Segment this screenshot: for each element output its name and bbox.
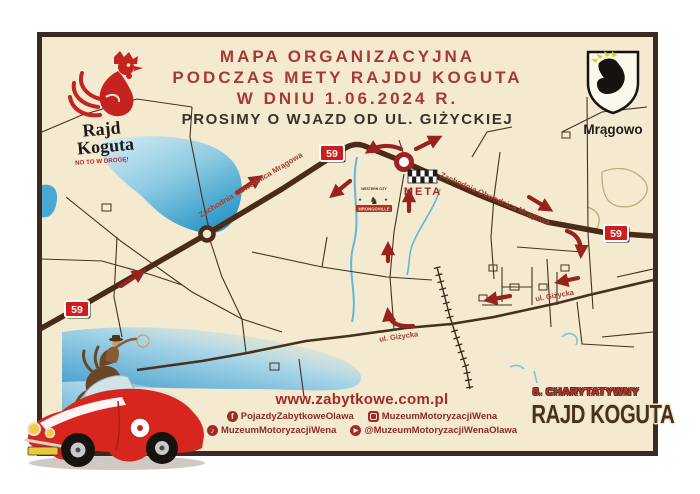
social-row-2: ♪ MuzeumMotoryzacjiWena ▶ @MuzeumMotoryz… (182, 425, 542, 436)
social-row-1: f PojazdyZabytkoweOlawa MuzeumMotoryzacj… (182, 411, 542, 422)
arrow-turn-up-gizycka (388, 312, 413, 326)
poster-page: 59 59 59 Zachodnia Obwodnica Mrągowa Zac… (0, 0, 700, 494)
website-url: www.zabytkowe.com.pl (182, 391, 542, 408)
event-badge: 8. CHARYTATYWNY RAJD KOGUTA (516, 386, 656, 430)
front-wheel-icon (61, 433, 95, 467)
instagram-handle: MuzeumMotoryzacjiWena (382, 411, 497, 422)
arrow-sw-mid (333, 181, 350, 195)
route-badge-right: 59 (604, 225, 630, 243)
checkered-flag-icon (408, 170, 437, 183)
field-outlines (585, 168, 647, 231)
arrow-ne-top (416, 138, 438, 149)
roundabout-meta (397, 155, 412, 170)
star-left-icon: ★ (358, 197, 363, 202)
mrongoville-logo: WESTERN CITY ★ ★ ♞ MRONGOVILLE (356, 187, 392, 212)
facebook-handle: PojazdyZabytkoweOlawa (241, 411, 354, 422)
mrongoville-banner-text: MRONGOVILLE (358, 206, 389, 211)
crest-city-name: Mrągowo (578, 122, 648, 137)
red-car-icon (26, 376, 205, 470)
route-badge-left: 59 (65, 301, 91, 319)
lake-left-edge (42, 185, 57, 218)
rajd-koguta-logo: Rajd Koguta NO TO W DROGĘ! (54, 49, 154, 167)
arrow-west-gizycka-east (559, 278, 578, 282)
route-number: 59 (71, 304, 83, 316)
arrow-se-east (529, 197, 549, 209)
route-number: 59 (610, 228, 622, 240)
city-crest: Mrągowo (578, 49, 648, 137)
instagram-icon (368, 411, 379, 422)
roundabout-west (201, 228, 214, 241)
classic-car-illustration (22, 331, 212, 489)
railway (437, 267, 470, 389)
youtube-handle: @MuzeumMotoryzacjiWenaOlawa (364, 425, 517, 436)
social-instagram: MuzeumMotoryzacjiWena (368, 411, 497, 422)
event-badge-line-2: RAJD KOGUTA (531, 399, 640, 430)
mrongoville-arc-text: WESTERN CITY (361, 187, 387, 191)
arrow-west-gizycka-mid (488, 296, 510, 300)
rooster-icon (70, 51, 143, 116)
social-facebook: f PojazdyZabytkoweOlawa (227, 411, 354, 422)
tiktok-handle: MuzeumMotoryzacjiWena (221, 425, 336, 436)
facebook-icon: f (227, 411, 238, 422)
finish-marker: META (404, 170, 442, 198)
social-tiktok: ♪ MuzeumMotoryzacjiWena (207, 425, 336, 436)
youtube-icon: ▶ (350, 425, 361, 436)
rear-wheel-icon (146, 432, 178, 464)
crest-shield-icon (583, 49, 643, 115)
route-badge-top: 59 (320, 145, 346, 163)
footer: www.zabytkowe.com.pl f PojazdyZabytkoweO… (182, 391, 542, 436)
star-right-icon: ★ (384, 197, 389, 202)
finish-label: META (404, 186, 442, 198)
event-badge-line-1: 8. CHARYTATYWNY (516, 386, 656, 398)
arrow-uturn-west (369, 146, 401, 151)
social-youtube: ▶ @MuzeumMotoryzacjiWenaOlawa (350, 425, 517, 436)
logo-word-2: Koguta (76, 134, 135, 159)
route-number: 59 (326, 148, 338, 160)
